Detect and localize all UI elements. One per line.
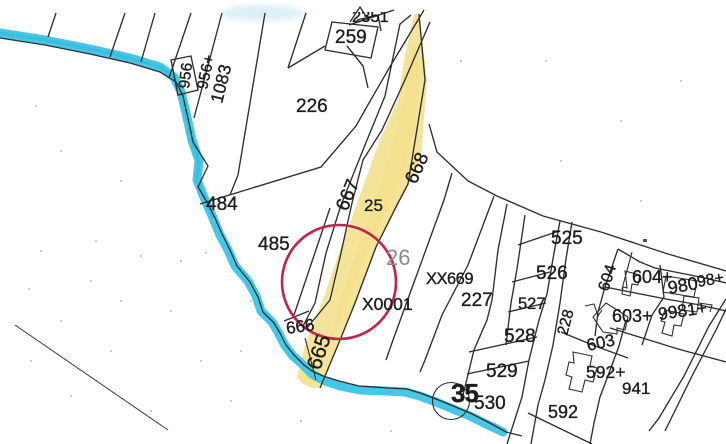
svg-text:X0001: X0001 [362, 294, 413, 314]
svg-text:603+: 603+ [612, 306, 653, 326]
svg-text:592: 592 [548, 402, 578, 422]
svg-text:666: 666 [285, 315, 316, 338]
svg-text:227: 227 [461, 290, 493, 311]
svg-text:226: 226 [296, 96, 328, 117]
svg-text:529: 529 [486, 361, 518, 382]
svg-text:530: 530 [474, 393, 506, 414]
svg-text:525: 525 [551, 228, 583, 249]
svg-text:528: 528 [504, 326, 536, 347]
svg-text:35: 35 [451, 378, 478, 408]
svg-text:25: 25 [364, 196, 383, 215]
svg-text:484: 484 [206, 194, 238, 215]
svg-text:259: 259 [335, 27, 367, 48]
svg-text:592+: 592+ [586, 362, 625, 382]
svg-text:956: 956 [176, 62, 196, 90]
svg-text:941: 941 [622, 379, 650, 398]
svg-text:526: 526 [536, 263, 568, 284]
svg-text:485: 485 [258, 234, 290, 255]
svg-text:XX669: XX669 [426, 270, 473, 288]
svg-text:527: 527 [518, 295, 546, 313]
svg-text:26: 26 [386, 245, 410, 270]
